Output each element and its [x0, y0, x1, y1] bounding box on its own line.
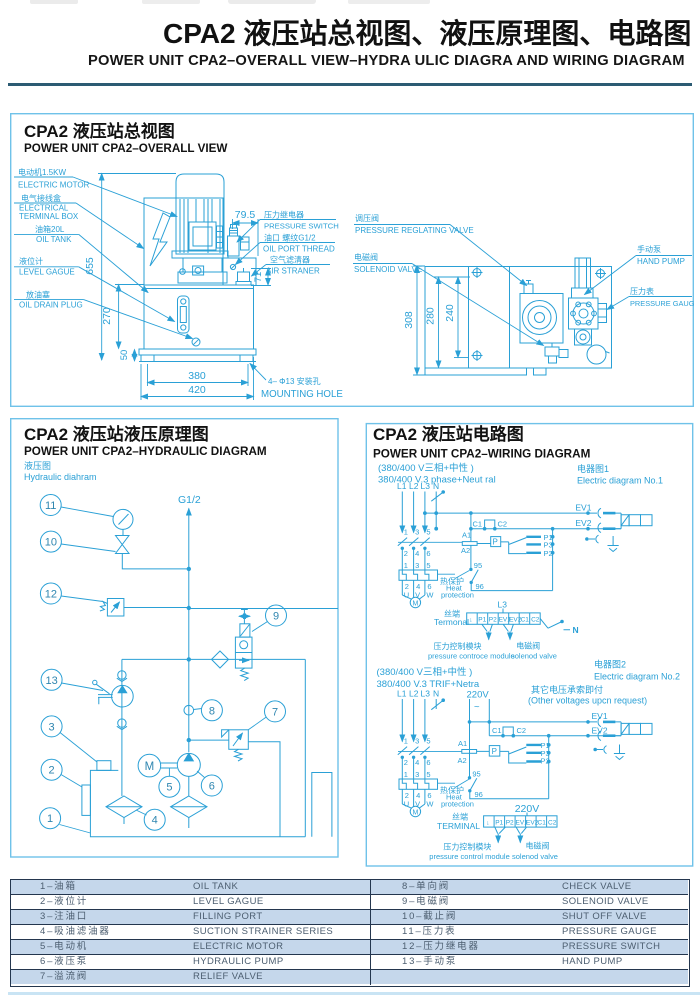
svg-text:OIL DRAIN PLUG: OIL DRAIN PLUG [19, 301, 83, 310]
svg-text:L1: L1 [397, 689, 407, 699]
svg-text:308: 308 [403, 311, 415, 329]
svg-text:EV2: EV2 [592, 726, 608, 736]
svg-text:P: P [492, 747, 497, 756]
svg-text:79.5: 79.5 [235, 209, 256, 221]
svg-text:空气滤清器: 空气滤清器 [270, 255, 310, 265]
svg-text:solenod valve: solenod valve [512, 852, 558, 861]
svg-text:电磁阀: 电磁阀 [354, 252, 378, 262]
svg-text:TERMINAL BOX: TERMINAL BOX [19, 212, 79, 221]
svg-text:OIL PORT THREAD: OIL PORT THREAD [263, 245, 335, 254]
svg-text:CPA2 液压站液压原理图: CPA2 液压站液压原理图 [24, 424, 209, 444]
svg-text:5: 5 [166, 782, 172, 794]
svg-text:其它电压承索即付: 其它电压承索即付 [531, 684, 603, 695]
svg-text:2: 2 [404, 758, 408, 767]
svg-text:(Other voltages upcn request): (Other voltages upcn request) [528, 696, 647, 706]
svg-text:电动机1.5KW: 电动机1.5KW [18, 167, 66, 177]
svg-text:380: 380 [188, 370, 206, 382]
svg-text:(380/400 V三相+中性 ): (380/400 V三相+中性 ) [377, 666, 473, 678]
svg-text:3: 3 [415, 737, 419, 746]
svg-text:96: 96 [475, 790, 483, 799]
svg-text:C1: C1 [473, 519, 483, 528]
svg-text:↓: ↓ [486, 819, 489, 826]
svg-text:L1: L1 [397, 481, 407, 491]
svg-text:8: 8 [209, 705, 215, 717]
svg-text:6: 6 [426, 549, 430, 558]
svg-text:L3: L3 [421, 481, 431, 491]
svg-text:G1/2: G1/2 [178, 494, 201, 506]
svg-text:A2: A2 [458, 756, 467, 765]
svg-text:C1: C1 [538, 819, 547, 826]
svg-text:手动泵: 手动泵 [637, 244, 661, 254]
svg-text:4– Φ13 安装孔: 4– Φ13 安装孔 [268, 376, 321, 386]
svg-text:C2: C2 [498, 519, 508, 528]
svg-text:(380/400 V三相+中性 ): (380/400 V三相+中性 ) [378, 462, 474, 474]
svg-text:4: 4 [415, 549, 419, 558]
svg-text:Electric diagram No.2: Electric diagram No.2 [594, 672, 680, 682]
svg-text:P1: P1 [478, 617, 486, 624]
svg-text:POWER UNIT CPA2–WIRING DIAGRAM: POWER UNIT CPA2–WIRING DIAGRAM [373, 448, 590, 461]
svg-text:U: U [404, 591, 409, 600]
svg-text:PRESSURE GAUGE: PRESSURE GAUGE [630, 299, 694, 308]
svg-text:11: 11 [45, 500, 56, 512]
svg-text:655: 655 [84, 257, 96, 275]
svg-text:Electric diagram No.1: Electric diagram No.1 [577, 476, 663, 486]
svg-text:电磁阀: 电磁阀 [516, 641, 540, 651]
svg-text:50: 50 [119, 350, 130, 361]
svg-text:L2: L2 [409, 689, 419, 699]
svg-text:压力控制模块: 压力控制模块 [443, 842, 491, 852]
svg-text:ELECTRIC MOTOR: ELECTRIC MOTOR [18, 181, 90, 190]
svg-text:pressure control module: pressure control module [429, 852, 509, 861]
svg-text:95: 95 [474, 561, 482, 570]
svg-text:5: 5 [426, 528, 430, 537]
svg-text:LEVEL GAGUE: LEVEL GAGUE [19, 268, 75, 277]
svg-text:95: 95 [472, 770, 480, 779]
svg-text:1: 1 [404, 528, 408, 537]
svg-text:EV1: EV1 [592, 711, 608, 721]
svg-text:2: 2 [404, 549, 408, 558]
svg-text:P2: P2 [506, 819, 514, 826]
svg-text:EV2: EV2 [575, 518, 591, 528]
svg-text:6: 6 [426, 758, 430, 767]
svg-text:1: 1 [47, 813, 53, 825]
svg-text:420: 420 [188, 384, 206, 396]
svg-text:W: W [426, 591, 434, 600]
svg-text:protection: protection [441, 800, 474, 809]
svg-text:3: 3 [415, 770, 419, 779]
svg-text:C2: C2 [531, 617, 540, 624]
svg-text:CPA2 液压站电路图: CPA2 液压站电路图 [373, 424, 524, 444]
svg-text:压力表: 压力表 [630, 286, 654, 296]
svg-text:13: 13 [45, 675, 57, 687]
svg-text:油箱20L: 油箱20L [35, 224, 65, 234]
svg-text:电器图2: 电器图2 [594, 659, 626, 670]
svg-text:3: 3 [49, 721, 55, 733]
svg-text:U: U [404, 800, 409, 809]
svg-text:液位计: 液位计 [19, 256, 43, 266]
svg-text:PRESSURE REGLATING VALVE: PRESSURE REGLATING VALVE [355, 226, 474, 235]
svg-text:TERMINAL: TERMINAL [437, 821, 480, 831]
svg-text:C1: C1 [521, 617, 530, 624]
svg-text:↓: ↓ [469, 617, 472, 624]
svg-text:1: 1 [404, 737, 408, 746]
svg-text:压力继电器: 压力继电器 [264, 210, 304, 220]
svg-text:P2: P2 [544, 549, 553, 558]
svg-text:5: 5 [426, 561, 430, 570]
svg-text:油口 螺纹G1/2: 油口 螺纹G1/2 [264, 233, 316, 243]
svg-text:PRESSURE SWITCH: PRESSURE SWITCH [264, 222, 339, 231]
svg-text:电器图1: 电器图1 [577, 463, 609, 474]
svg-text:HAND PUMP: HAND PUMP [637, 257, 685, 266]
svg-text:Hydraulic diahram: Hydraulic diahram [24, 472, 97, 482]
svg-text:M: M [412, 809, 418, 816]
svg-text:N: N [433, 689, 439, 699]
svg-text:POWER UNIT CPA2–HYDRAULIC DIAG: POWER UNIT CPA2–HYDRAULIC DIAGRAM [24, 445, 267, 458]
svg-text:6: 6 [209, 781, 215, 793]
svg-text:3: 3 [415, 561, 419, 570]
svg-text:液压图: 液压图 [24, 460, 51, 471]
svg-text:9: 9 [273, 611, 279, 623]
svg-text:4: 4 [152, 815, 158, 827]
svg-text:C1: C1 [492, 726, 502, 735]
svg-text:电磁阀: 电磁阀 [526, 841, 550, 851]
svg-text:5: 5 [426, 737, 430, 746]
svg-text:10: 10 [45, 537, 57, 549]
svg-text:POWER UNIT CPA2–OVERALL VIEW: POWER UNIT CPA2–OVERALL VIEW [24, 142, 228, 155]
svg-text:W: W [426, 800, 434, 809]
svg-text:A2: A2 [461, 546, 470, 555]
svg-text:放油塞: 放油塞 [26, 290, 50, 300]
svg-text:P2: P2 [541, 757, 550, 766]
svg-text:A1: A1 [462, 531, 471, 540]
svg-text:丝端: 丝端 [452, 812, 468, 822]
svg-text:电气接线盒: 电气接线盒 [21, 193, 61, 203]
svg-text:OIL TANK: OIL TANK [36, 235, 72, 244]
svg-text:220V: 220V [515, 803, 540, 815]
svg-text:solenod valve: solenod valve [511, 652, 557, 661]
svg-text:240: 240 [444, 304, 456, 322]
svg-text:5: 5 [426, 770, 430, 779]
svg-text:CPA2 液压站总视图: CPA2 液压站总视图 [24, 121, 175, 141]
svg-text:AIR STRANER: AIR STRANER [266, 267, 320, 276]
svg-text:N: N [433, 481, 439, 491]
svg-text:V: V [415, 800, 420, 809]
svg-text:C2: C2 [548, 819, 557, 826]
svg-text:C2: C2 [517, 726, 527, 735]
svg-text:12: 12 [45, 589, 57, 601]
svg-text:SOLENOID VALVE: SOLENOID VALVE [354, 265, 422, 274]
svg-text:2: 2 [49, 765, 55, 777]
svg-text:MOUNTING HOLE: MOUNTING HOLE [261, 389, 343, 400]
svg-text:压力控制模块: 压力控制模块 [434, 641, 482, 651]
svg-text:A1: A1 [458, 739, 467, 748]
svg-text:220V: 220V [467, 690, 490, 701]
svg-text:M: M [412, 600, 418, 607]
svg-text:pressure controce module: pressure controce module [428, 652, 515, 661]
svg-text:P1: P1 [495, 819, 503, 826]
svg-text:N: N [573, 625, 579, 635]
svg-text:L3: L3 [421, 689, 431, 699]
svg-text:4: 4 [415, 758, 419, 767]
svg-text:7: 7 [272, 706, 278, 718]
svg-text:1: 1 [404, 561, 408, 570]
svg-text:Termonal: Termonal [434, 617, 469, 627]
svg-text:调压阀: 调压阀 [355, 214, 379, 223]
svg-text:P2: P2 [489, 617, 497, 624]
svg-text:3: 3 [415, 528, 419, 537]
svg-text:L3: L3 [498, 600, 508, 610]
svg-text:M: M [145, 761, 155, 773]
svg-text:P: P [493, 538, 498, 547]
svg-text:96: 96 [476, 582, 484, 591]
svg-text:1: 1 [404, 770, 408, 779]
svg-text:L2: L2 [409, 481, 419, 491]
svg-text:280: 280 [425, 307, 437, 325]
svg-text:V: V [415, 591, 420, 600]
svg-text:protection: protection [441, 591, 474, 600]
svg-text:~: ~ [474, 702, 480, 713]
svg-text:EV1: EV1 [575, 502, 591, 512]
